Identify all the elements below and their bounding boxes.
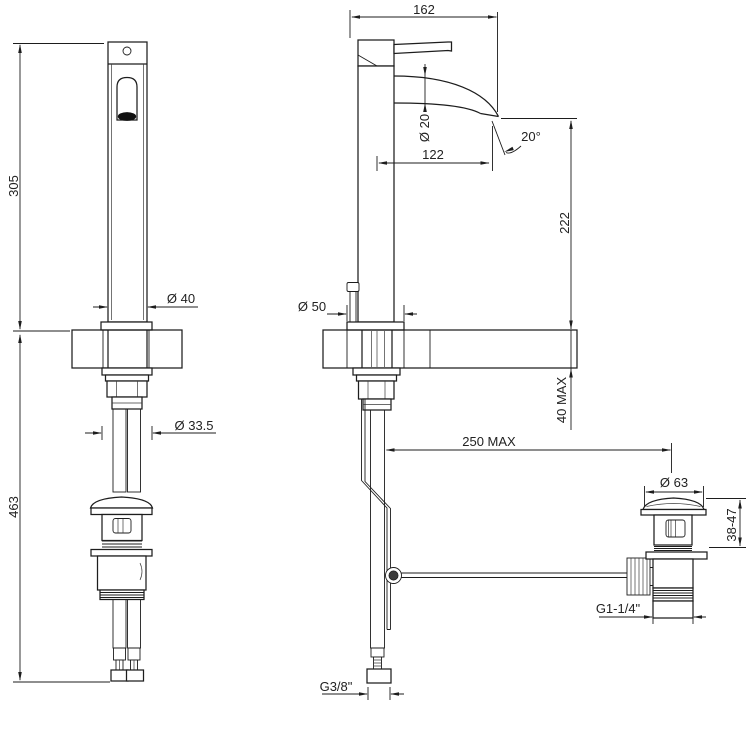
popup-waste-front-view: [91, 497, 153, 600]
dim-drain-cap-diameter-label: Ø 63: [660, 475, 688, 490]
supply-hose-left-lower: [113, 600, 126, 649]
dim-front-height: 305: [6, 44, 104, 332]
supply-hose-left: [113, 409, 126, 492]
dim-flow-angle-label: 20°: [521, 129, 541, 144]
drain-lower-body: [98, 556, 147, 590]
base-flange-side: [347, 322, 404, 330]
deck-front: [72, 330, 182, 368]
shank-through-deck: [108, 330, 147, 368]
hose-end-fittings: [111, 648, 144, 681]
drain-cap-plate: [91, 508, 152, 515]
supply-hose-right: [128, 409, 141, 492]
dim-deck-thickness-label: 40 MAX: [554, 377, 569, 424]
drain-window: [113, 519, 131, 534]
popup-waste-side-view: [627, 498, 707, 618]
supply-hose-end-fitting: [367, 648, 391, 683]
dim-drain-height: 38-47: [706, 499, 746, 548]
dim-front-height-label: 305: [6, 175, 21, 197]
drain-flange: [91, 550, 152, 557]
spout-outlet-face: [481, 114, 499, 117]
mounting-nut-front: [107, 381, 147, 397]
aerator-opening: [118, 112, 136, 121]
faucet-front-view: [72, 42, 182, 681]
drain-cap-dome: [91, 497, 153, 508]
faucet-side-view: [323, 40, 628, 683]
dim-below-deck-height-label: 463: [6, 496, 21, 518]
washer-band-front: [106, 375, 149, 381]
rod-joint-screw: [389, 571, 398, 580]
drain-threads-upper-side: [654, 547, 692, 551]
lift-rod-knob: [347, 283, 359, 292]
supply-hose-right-lower: [128, 600, 141, 649]
drain-flange-side: [646, 552, 707, 559]
rod-clamp-knurl: [627, 558, 650, 595]
dim-spout-diameter-label: Ø 20: [417, 114, 432, 142]
hose-lines-in-deck: [372, 331, 385, 367]
handle-lever: [394, 42, 452, 54]
dim-rod-reach-label: 250 MAX: [462, 434, 516, 449]
dim-drain-height-label: 38-47: [724, 508, 739, 541]
dim-outlet-height-label: 222: [557, 212, 572, 234]
deck-hatch-right-side: [404, 330, 430, 368]
drain-lower-body-side: [653, 559, 693, 588]
dim-supply-thread-label: G3/8": [320, 679, 353, 694]
dim-drain-thread-label: G1-1/4": [596, 601, 641, 616]
drain-tail-threads-side: [653, 588, 693, 601]
lift-rod: [350, 291, 356, 322]
dim-body-diameter-label: Ø 40: [167, 291, 195, 306]
washer-side: [353, 368, 400, 375]
mounting-nut-side: [359, 381, 395, 399]
deck-side: [323, 330, 577, 368]
dim-flow-angle: 20°: [492, 121, 541, 155]
dim-shank-diameter: Ø 33.5: [85, 418, 216, 440]
spout-outer-curve: [394, 76, 499, 117]
washer-front: [102, 368, 152, 375]
spout-inner-curve: [394, 103, 481, 114]
base-flange-front: [101, 322, 152, 330]
drain-threads-upper: [102, 541, 142, 547]
cap-hole: [123, 47, 131, 55]
dim-spout-reach-label: 122: [422, 147, 444, 162]
supply-hose-side: [371, 410, 385, 648]
dim-rod-reach: 250 MAX: [386, 434, 672, 473]
dim-base-diameter-label: Ø 50: [298, 299, 326, 314]
washer-band-side: [357, 375, 397, 381]
dim-overall-depth-label: 162: [413, 2, 435, 17]
deck-hatch-left: [72, 330, 103, 368]
drain-cap-plate-side: [641, 510, 706, 516]
popup-rod: [362, 399, 391, 630]
linkage-rod: [386, 573, 628, 578]
faucet-body-side: [358, 66, 394, 322]
faucet-technical-drawing: 305 463 Ø 40 Ø 33.5 162: [0, 0, 750, 730]
technical-drawing-page: 305 463 Ø 40 Ø 33.5 162: [0, 0, 750, 730]
dim-deck-thickness: 40 MAX: [554, 330, 573, 430]
water-flow-line: [492, 121, 505, 155]
drain-tailpiece: [653, 601, 693, 618]
deck-hatch-right: [149, 330, 182, 368]
handle-cap-side: [358, 40, 394, 66]
dim-shank-diameter-label: Ø 33.5: [174, 418, 213, 433]
deck-hatch-left-side: [323, 330, 347, 368]
